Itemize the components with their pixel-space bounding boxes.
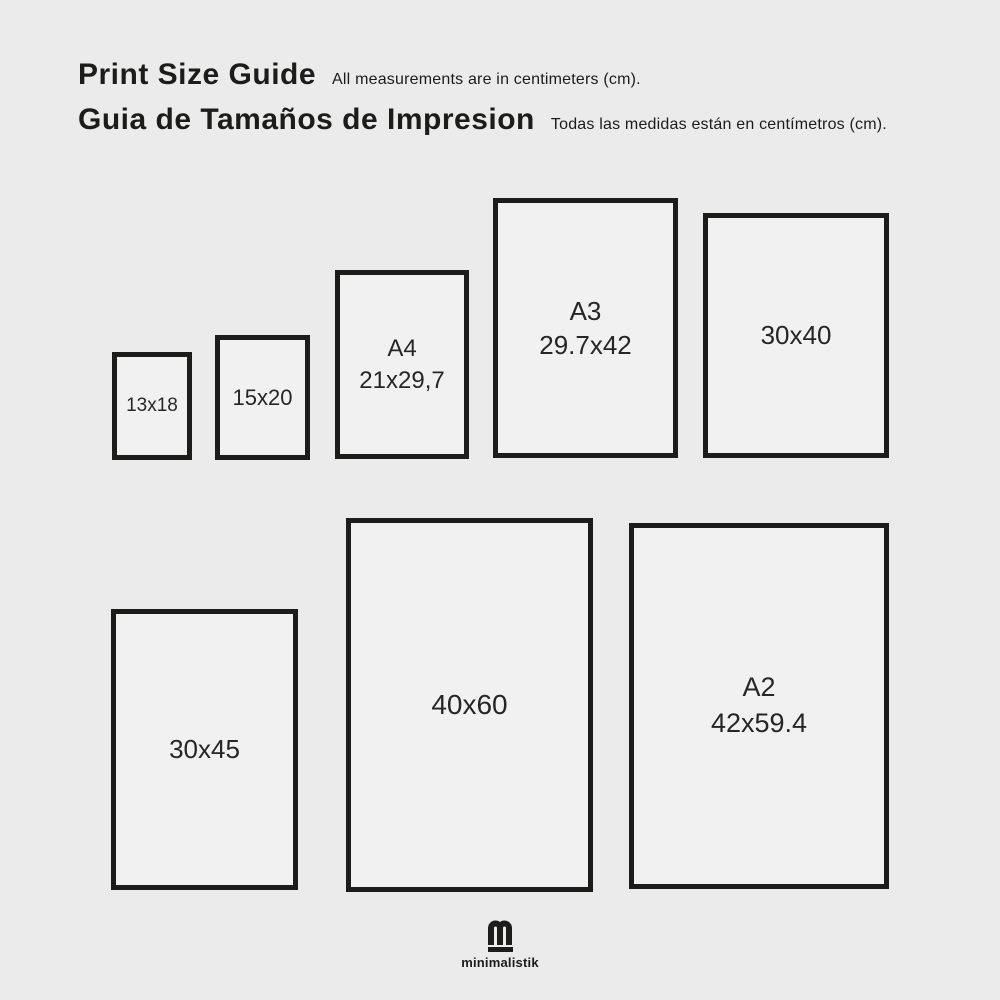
subtitle-spanish: Todas las medidas están en centímetros (… [551, 116, 887, 134]
size-box-13x18: 13x18 [112, 352, 192, 460]
title-row-english: Print Size Guide All measurements are in… [78, 58, 960, 92]
brand-name: minimalistik [461, 955, 539, 970]
size-box-a2: A2 42x59.4 [629, 523, 889, 889]
size-dimensions: 42x59.4 [711, 706, 807, 742]
header: Print Size Guide All measurements are in… [78, 58, 960, 137]
print-size-guide-poster: Print Size Guide All measurements are in… [0, 0, 1000, 1000]
logo-underline-bar [488, 947, 513, 952]
size-dimensions: 21x29,7 [359, 365, 444, 397]
size-dimensions: 40x60 [431, 687, 507, 724]
minimalistik-m-icon [488, 918, 512, 945]
size-box-15x20: 15x20 [215, 335, 310, 460]
size-dimensions: 30x40 [761, 318, 832, 352]
size-box-a4: A4 21x29,7 [335, 270, 469, 459]
page-title-english: Print Size Guide [78, 58, 316, 92]
size-box-30x40: 30x40 [703, 213, 889, 458]
size-name: A4 [387, 333, 416, 365]
brand-footer: minimalistik [0, 918, 1000, 970]
size-dimensions: 15x20 [233, 383, 293, 412]
size-dimensions: 30x45 [169, 732, 240, 766]
size-box-40x60: 40x60 [346, 518, 593, 892]
page-title-spanish: Guia de Tamaños de Impresion [78, 103, 535, 137]
size-box-30x45: 30x45 [111, 609, 298, 890]
size-name: A2 [742, 670, 775, 706]
subtitle-english: All measurements are in centimeters (cm)… [332, 71, 641, 89]
size-dimensions: 29.7x42 [539, 328, 632, 362]
size-name: A3 [570, 294, 602, 328]
title-row-spanish: Guia de Tamaños de Impresion Todas las m… [78, 103, 960, 137]
size-box-a3: A3 29.7x42 [493, 198, 678, 458]
size-dimensions: 13x18 [126, 393, 178, 418]
